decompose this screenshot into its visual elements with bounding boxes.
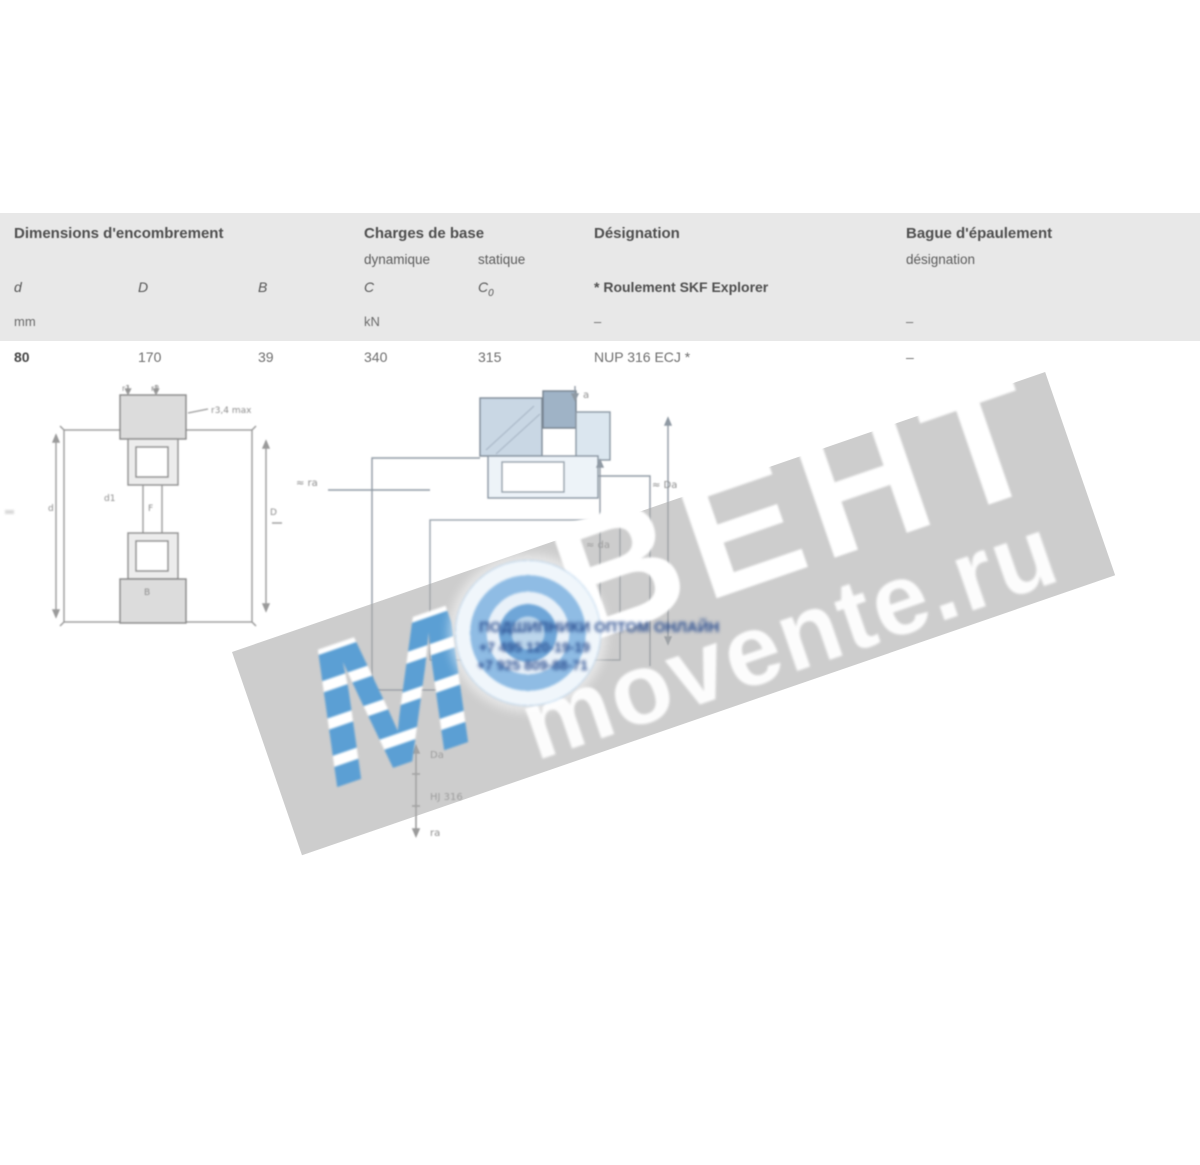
symbol-D: D bbox=[138, 279, 148, 295]
symbol-C: C bbox=[364, 279, 374, 295]
label-d: d bbox=[48, 504, 54, 514]
col-group-designation: Désignation bbox=[594, 225, 680, 242]
label-ra: ≈ ra bbox=[296, 478, 318, 489]
symbol-C0: C0 bbox=[478, 279, 494, 299]
label-r1: r1 bbox=[122, 384, 130, 393]
symbol-d: d bbox=[14, 279, 22, 295]
watermark-contact-line1: ПОДШИПНИКИ ОПТОМ ОНЛАЙН bbox=[479, 619, 719, 636]
subheader-static: statique bbox=[478, 252, 525, 267]
watermark-contact-line2: +7 495 120-19-19 bbox=[479, 639, 590, 655]
label-a: a bbox=[583, 390, 589, 401]
label-B: B bbox=[144, 588, 150, 598]
value-B: 39 bbox=[258, 349, 274, 365]
value-designation: NUP 316 ECJ * bbox=[594, 349, 690, 365]
watermark-contact-line3: +7 925 809-88-71 bbox=[477, 657, 588, 673]
subheader-dynamic: dynamique bbox=[364, 252, 430, 267]
label-F: F bbox=[148, 504, 153, 514]
subheader-ring-designation: désignation bbox=[906, 252, 975, 267]
value-C0: 315 bbox=[478, 349, 501, 365]
designation-note: * Roulement SKF Explorer bbox=[594, 279, 768, 295]
catalog-page: Dimensions d'encombrement Charges de bas… bbox=[0, 0, 1200, 1165]
table-header-band: Dimensions d'encombrement Charges de bas… bbox=[0, 213, 1200, 341]
symbol-B: B bbox=[258, 279, 267, 295]
col-group-dimensions: Dimensions d'encombrement bbox=[14, 225, 223, 242]
unit-mm: mm bbox=[14, 314, 36, 329]
unit-designation-dash: – bbox=[594, 314, 601, 329]
unit-kn: kN bbox=[364, 314, 380, 329]
value-d: 80 bbox=[14, 349, 30, 365]
label-r34: r3,4 max bbox=[211, 406, 252, 416]
scan-speck bbox=[5, 510, 14, 514]
label-D: D bbox=[270, 508, 277, 518]
unit-ring-dash: – bbox=[906, 314, 913, 329]
scale-label-bottom: ra bbox=[430, 828, 440, 839]
label-d1: d1 bbox=[104, 494, 115, 504]
value-ring-dash: – bbox=[906, 349, 914, 365]
col-group-ring: Bague d'épaulement bbox=[906, 225, 1052, 242]
col-group-loads: Charges de base bbox=[364, 225, 484, 242]
label-r2: r2 bbox=[151, 384, 159, 393]
value-C: 340 bbox=[364, 349, 387, 365]
value-D: 170 bbox=[138, 349, 161, 365]
bearing-cross-section-drawing: r1 r2 r3,4 max d1 F B d D bbox=[48, 383, 283, 633]
